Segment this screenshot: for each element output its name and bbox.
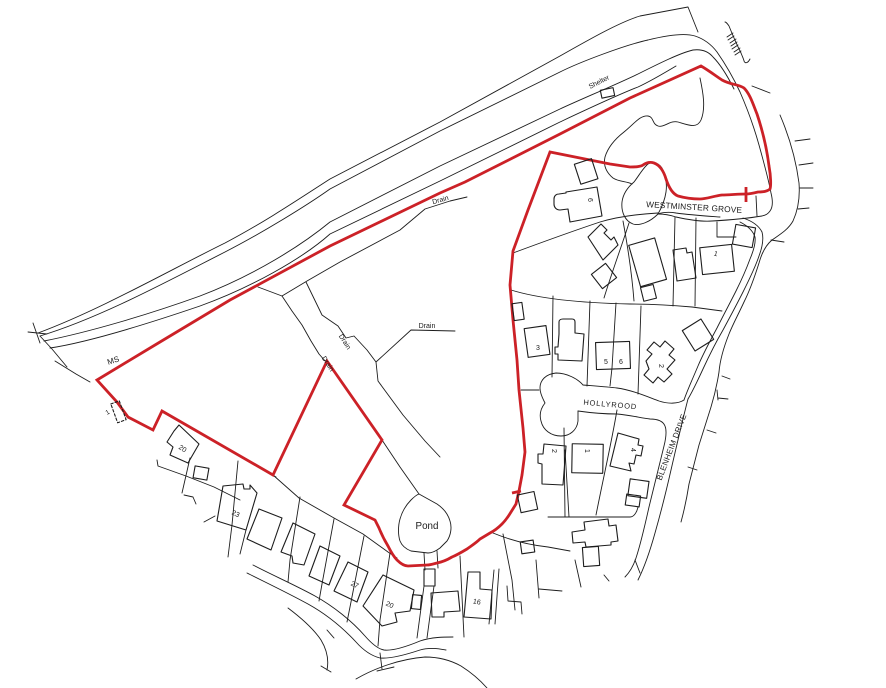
svg-text:2: 2 xyxy=(657,364,664,368)
svg-text:4: 4 xyxy=(629,448,636,452)
svg-text:5: 5 xyxy=(604,359,608,366)
svg-text:3: 3 xyxy=(536,345,540,352)
svg-text:6: 6 xyxy=(586,198,593,202)
svg-text:Pond: Pond xyxy=(416,521,439,532)
svg-text:Drain: Drain xyxy=(419,323,436,330)
svg-text:1: 1 xyxy=(583,449,590,453)
svg-text:16: 16 xyxy=(472,598,481,606)
svg-text:2: 2 xyxy=(550,449,557,453)
svg-text:6: 6 xyxy=(619,359,623,366)
